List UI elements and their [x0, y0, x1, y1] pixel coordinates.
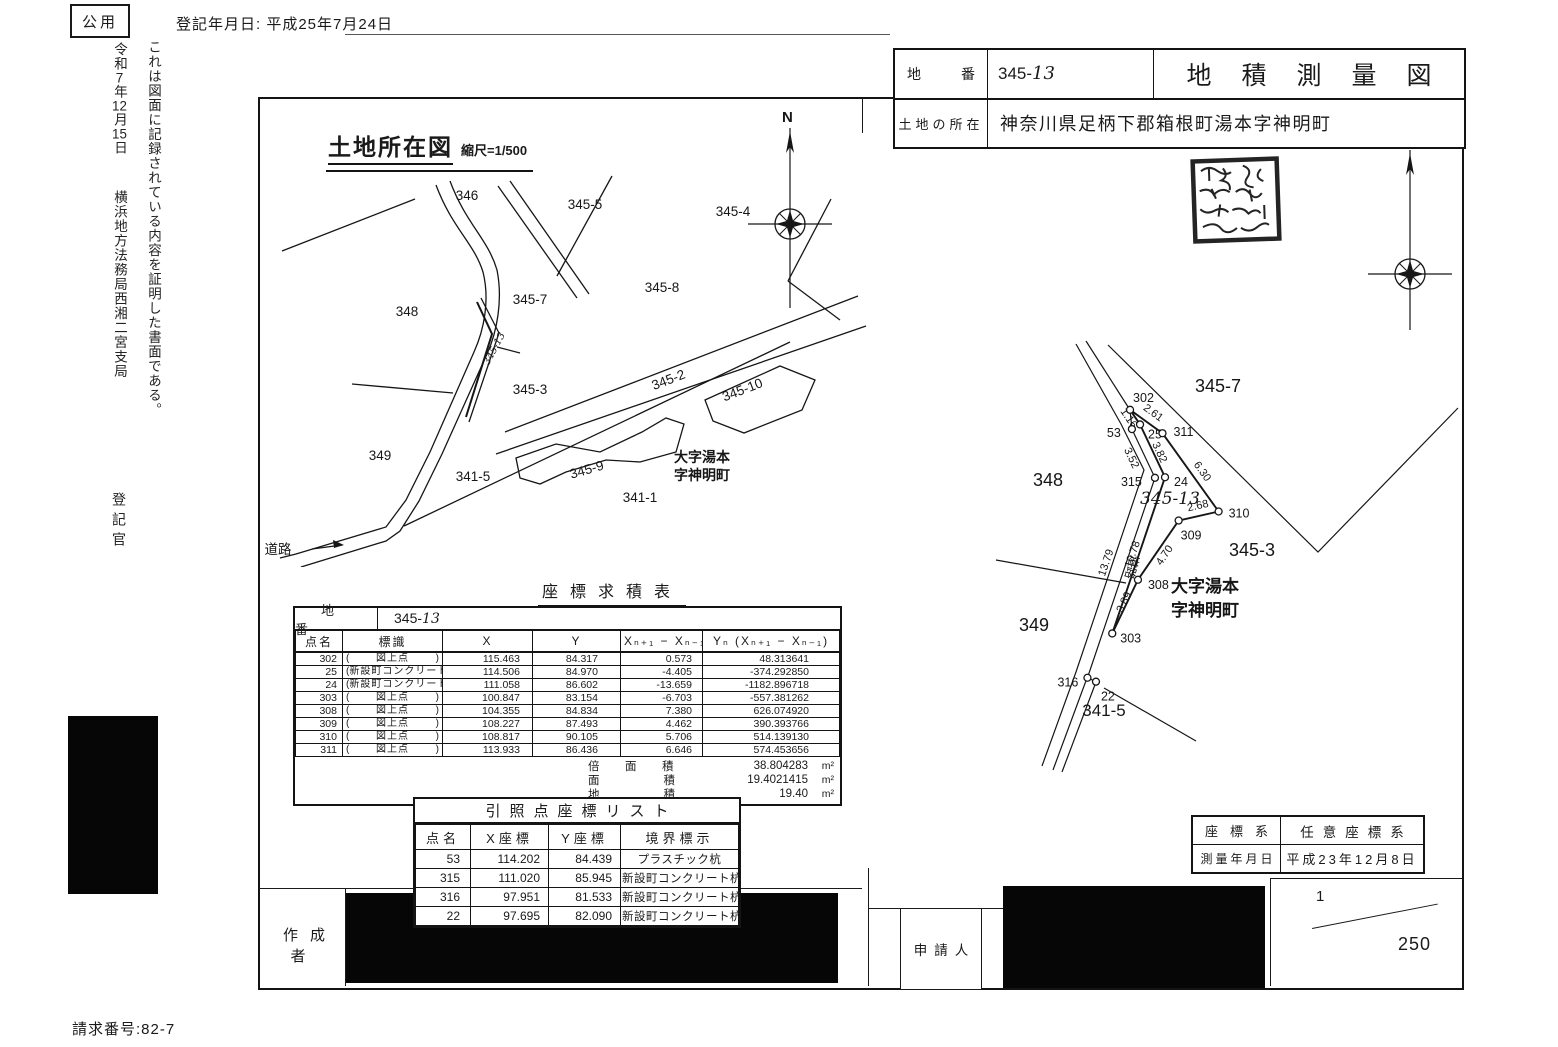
scale-cell-top [1270, 878, 1462, 879]
boundary-line [557, 176, 612, 276]
location-value: 神奈川県足柄下郡箱根町湯本字神明町 [988, 100, 1464, 148]
coord-table-row: 308(図上点)104.35584.8347.380626.074920 [296, 705, 840, 718]
point-mark: (新設町コンクリート杭) [343, 679, 443, 692]
coord-table-row: 24(新設町コンクリート杭)111.05886.602-13.659-1182.… [296, 679, 840, 692]
certificate-date: 令和7年12月15日 [109, 42, 129, 155]
point-mark: (図上点) [343, 705, 443, 718]
coord-x: 113.933 [443, 744, 533, 757]
compass-rose-icon [748, 209, 832, 239]
coord-ydx: 390.393766 [703, 718, 840, 731]
coord-parcel-handwritten: 13 [422, 611, 440, 627]
survey-point-marker [1128, 426, 1135, 433]
reference-table-row: 53114.20284.439プラスチック杭 [416, 850, 739, 869]
coord-y: 86.602 [533, 679, 621, 692]
coord-parcel-number: 345-13 [378, 610, 440, 627]
coord-table-title: 座標求積表 [538, 578, 686, 606]
reference-cell: 315 [416, 869, 471, 888]
coord-ydx: 514.139130 [703, 731, 840, 744]
applicant-label: 申請人 [900, 908, 982, 990]
reference-column-header: 境界標示 [621, 825, 739, 850]
title-block: 地番 345-13 地積測量図 土地の所在 神奈川県足柄下郡箱根町湯本字神明町 [893, 48, 1466, 149]
site-map-title: 土地所在図 縮尺=1/500 [326, 128, 533, 172]
coordinate-table: 地番 345-13 点名 標識 X Y Xₙ₊₁ − Xₙ₋₁ Yₙ (Xₙ₊₁… [293, 606, 842, 806]
site-parcel-label: 345-8 [645, 280, 680, 295]
reference-cell: 85.945 [549, 869, 621, 888]
area-summary-row: 倍面積38.804283m² [295, 759, 834, 773]
survey-region-label: 345-7 [1195, 376, 1241, 396]
survey-meta-table: 座標系 任意座標系 測量年月日 平成23年12月8日 [1191, 815, 1425, 874]
survey-region-label: 大字湯本 [1171, 576, 1239, 596]
site-parcel-label: 345-7 [513, 292, 548, 307]
document-title: 地積測量図 [1154, 50, 1464, 98]
survey-point-label: 315 [1121, 475, 1142, 489]
survey-point-label: 53 [1107, 426, 1121, 440]
reference-cell: プラスチック杭 [621, 850, 739, 869]
scale-cell-divider [1270, 878, 1271, 986]
site-map-title-text: 土地所在図 [328, 128, 453, 165]
edge-distance-label: 3.52 [1121, 446, 1141, 470]
survey-point-label: 302 [1133, 391, 1154, 405]
point-mark: (図上点) [343, 652, 443, 666]
survey-point-marker [1162, 474, 1169, 481]
point-name: 303 [296, 692, 343, 705]
registration-date: 登記年月日: 平成25年7月24日 [176, 13, 393, 34]
point-name: 24 [296, 679, 343, 692]
edge-distance-label: 4.70 [1154, 543, 1176, 567]
north-arrow-right: N [1368, 131, 1452, 330]
survey-static-lines [996, 341, 1458, 772]
reference-cell: 97.951 [471, 888, 549, 907]
coord-dx: -13.659 [621, 679, 703, 692]
reference-cell: 81.533 [549, 888, 621, 907]
coord-y: 90.105 [533, 731, 621, 744]
site-parcel-label: 大字湯本 [674, 449, 731, 465]
coord-dx: 4.462 [621, 718, 703, 731]
coord-parcel-printed: 345- [394, 610, 422, 626]
boundary-line [788, 281, 840, 320]
reference-cell: 111.020 [471, 869, 549, 888]
coord-ydx: 574.453656 [703, 744, 840, 757]
parcel-number-label: 地番 [895, 64, 988, 84]
boundary-line [404, 342, 790, 526]
coord-y: 84.834 [533, 705, 621, 718]
compass-rose-icon [1368, 259, 1452, 289]
reference-column-header: 点名 [416, 825, 471, 850]
col-y: Y [533, 631, 621, 653]
coord-table-row: 302(図上点)115.46384.3170.57348.313641 [296, 652, 840, 666]
location-label: 土地の所在 [895, 100, 988, 148]
reference-table-title: 引照点座標リスト [415, 799, 739, 824]
area-unit: m² [808, 760, 834, 772]
col-ydx: Yₙ (Xₙ₊₁ − Xₙ₋₁) [703, 631, 840, 653]
reference-point-table: 引照点座標リスト 点名X座標Y座標境界標示 53114.20284.439プラス… [413, 797, 741, 928]
survey-edge [1179, 511, 1219, 520]
area-unit: m² [808, 774, 834, 786]
site-parcel-label: 345-9 [568, 458, 605, 482]
reference-column-header: X座標 [471, 825, 549, 850]
survey-traverse: 1.163.8210.783.894.702.686.302.613.5213.… [1019, 376, 1275, 720]
coord-y: 87.493 [533, 718, 621, 731]
survey-point-marker [1137, 421, 1144, 428]
area-value: 38.804283 [678, 760, 808, 772]
site-parcel-label: 道路 [265, 542, 292, 557]
boundary-line [788, 199, 831, 281]
coord-x: 100.847 [443, 692, 533, 705]
reference-column-header: Y座標 [549, 825, 621, 850]
reference-cell: 53 [416, 850, 471, 869]
survey-plot-map: N 1.163.8210.783.894.702.686.302.613.521… [986, 120, 1462, 800]
survey-region-label: 341-5 [1082, 701, 1125, 720]
parcel-number-handwritten: 13 [1032, 63, 1055, 84]
survey-point-marker [1127, 406, 1134, 413]
point-name: 308 [296, 705, 343, 718]
coord-x: 108.817 [443, 731, 533, 744]
reference-cell: 97.695 [471, 907, 549, 926]
survey-date-value: 平成23年12月8日 [1281, 845, 1423, 872]
coord-table-row: 25(新設町コンクリート杭)114.50684.970-4.405-374.29… [296, 666, 840, 679]
coord-y: 83.154 [533, 692, 621, 705]
site-parcel-label: 346 [456, 188, 479, 203]
area-summary-row: 面積19.4021415m² [295, 773, 834, 787]
survey-point-label: 24 [1174, 475, 1188, 489]
coord-dx: -6.703 [621, 692, 703, 705]
reference-table-row: 315111.02085.945新設町コンクリート杭 [416, 869, 739, 888]
reference-table-row: 31697.95181.533新設町コンクリート杭 [416, 888, 739, 907]
coord-y: 84.970 [533, 666, 621, 679]
road-edge-east-bottom [1053, 678, 1087, 770]
survey-point-marker [1175, 517, 1182, 524]
survey-point-label: 309 [1181, 529, 1202, 543]
site-parcel-label: 345-3 [513, 382, 548, 397]
point-name: 302 [296, 652, 343, 666]
reference-cell: 82.090 [549, 907, 621, 926]
coord-ydx: 626.074920 [703, 705, 840, 718]
site-map-scale-note: 縮尺=1/500 [461, 140, 527, 159]
registrar-label: 登記官 [109, 492, 129, 552]
point-name: 309 [296, 718, 343, 731]
survey-point-label: 316 [1057, 676, 1078, 690]
survey-point-marker [1092, 678, 1099, 685]
parcel-number-label-cell: 地番 [895, 50, 988, 98]
site-parcel-label: 341-5 [456, 469, 491, 484]
point-mark: (図上点) [343, 692, 443, 705]
redaction-box-left [68, 716, 158, 894]
site-parcel-label: 349 [369, 448, 392, 463]
point-mark: (図上点) [343, 718, 443, 731]
reference-header-row: 点名X座標Y座標境界標示 [416, 825, 739, 850]
area-value: 19.4021415 [678, 774, 808, 786]
title-row: 地番 345-13 地積測量図 [895, 50, 1464, 100]
site-parcel-label: 341-1 [623, 490, 658, 505]
north-label: N [782, 109, 793, 126]
site-map-labels: 346345-5345-4348345-7345-8345-3345-2345-… [265, 188, 765, 557]
survey-point-label: 311 [1173, 425, 1193, 439]
coord-y: 84.317 [533, 652, 621, 666]
coord-parcel-row: 地番 345-13 [295, 608, 840, 630]
coord-x: 104.355 [443, 705, 533, 718]
site-parcel-label: 345-2 [650, 367, 688, 393]
road-edge-east [301, 181, 499, 567]
survey-point-marker [1109, 630, 1116, 637]
site-map-lines [280, 176, 866, 567]
scale-denominator: 250 [1398, 934, 1431, 955]
author-label: 作成者 [262, 924, 346, 966]
coord-x: 111.058 [443, 679, 533, 692]
coord-x: 115.463 [443, 652, 533, 666]
reference-cell: 316 [416, 888, 471, 907]
coord-table-row: 303(図上点)100.84783.154-6.703-557.381262 [296, 692, 840, 705]
survey-point-marker [1084, 674, 1091, 681]
coord-x: 114.506 [443, 666, 533, 679]
coord-table-row: 310(図上点)108.81790.1055.706514.139130 [296, 731, 840, 744]
parcel-number-cell: 345-13 [988, 50, 1154, 98]
coord-parcel-label: 地番 [295, 608, 378, 629]
coord-dx: 0.573 [621, 652, 703, 666]
survey-point-marker [1159, 430, 1166, 437]
survey-region-label: 349 [1019, 615, 1049, 635]
boundary-line [282, 199, 415, 251]
scale-numerator: 1 [1316, 888, 1324, 905]
area-unit: m² [808, 788, 834, 800]
scanned-cadastral-document: { "page": { "classification": "公用", "reg… [0, 0, 1558, 1047]
parcel-outline-345-9 [516, 418, 684, 484]
point-name: 311 [296, 744, 343, 757]
reference-cell: 114.202 [471, 850, 549, 869]
certificate-text: これは図面に記録されている内容を証明した書面である。 [143, 40, 163, 417]
edge-distance-label: 6.30 [1191, 459, 1213, 483]
coord-ydx: -1182.896718 [703, 679, 840, 692]
coord-table-row: 311(図上点)113.93386.4366.646574.453656 [296, 744, 840, 757]
survey-point-marker [1151, 474, 1158, 481]
survey-date-row: 測量年月日 平成23年12月8日 [1193, 845, 1423, 872]
parcel-number-printed: 345- [998, 64, 1032, 84]
point-mark: (新設町コンクリート杭) [343, 666, 443, 679]
coord-system-value: 任意座標系 [1281, 817, 1423, 844]
point-name: 25 [296, 666, 343, 679]
site-parcel-label: 345-10 [720, 375, 765, 404]
coord-y: 86.436 [533, 744, 621, 757]
edge-distance-label: 3.82 [1149, 440, 1169, 464]
site-parcel-label: 345-4 [716, 204, 751, 219]
registrar-seal-icon [1193, 159, 1280, 242]
reference-cell: 新設町コンクリート杭 [621, 888, 739, 907]
survey-region-label: 345-3 [1229, 540, 1275, 560]
request-number: 請求番号:82-7 [72, 1018, 175, 1039]
reference-table-row: 2297.69582.090新設町コンクリート杭 [416, 907, 739, 926]
survey-region-label: 348 [1033, 470, 1063, 490]
coord-table-row: 309(図上点)108.22787.4934.462390.393766 [296, 718, 840, 731]
reference-cell: 84.439 [549, 850, 621, 869]
redaction-box-applicant [1003, 886, 1265, 988]
coord-ydx: -374.292850 [703, 666, 840, 679]
boundary-line [505, 296, 858, 432]
site-parcel-label: 字神明町 [674, 467, 730, 483]
location-row: 土地の所在 神奈川県足柄下郡箱根町湯本字神明町 [895, 100, 1464, 148]
coord-x: 108.227 [443, 718, 533, 731]
boundary-line [352, 384, 453, 393]
survey-region-label: 字神明町 [1171, 600, 1239, 620]
survey-point-label: 310 [1229, 506, 1250, 520]
site-parcel-label: 348 [396, 304, 419, 319]
coord-dx: 6.646 [621, 744, 703, 757]
point-name: 310 [296, 731, 343, 744]
col-x: X [443, 631, 533, 653]
survey-point-marker [1215, 508, 1222, 515]
coord-system-label: 座標系 [1193, 817, 1281, 844]
coord-dx: 5.706 [621, 731, 703, 744]
point-mark: (図上点) [343, 731, 443, 744]
coord-dx: -4.405 [621, 666, 703, 679]
coord-header-row: 点名 標識 X Y Xₙ₊₁ − Xₙ₋₁ Yₙ (Xₙ₊₁ − Xₙ₋₁) [296, 631, 840, 653]
survey-point-label: 303 [1120, 631, 1141, 645]
rule-line [345, 34, 890, 35]
coord-ydx: 48.313641 [703, 652, 840, 666]
reference-cell: 新設町コンクリート杭 [621, 869, 739, 888]
col-dx: Xₙ₊₁ − Xₙ₋₁ [621, 631, 703, 653]
reference-cell: 新設町コンクリート杭 [621, 907, 739, 926]
coord-ydx: -557.381262 [703, 692, 840, 705]
site-parcel-label: 345-5 [568, 197, 603, 212]
north-arrow-left: N [748, 109, 832, 308]
survey-date-label: 測量年月日 [1193, 845, 1281, 872]
reference-cell: 22 [416, 907, 471, 926]
survey-point-label: 308 [1148, 578, 1169, 592]
legal-affairs-office: 横浜地方法務局西湘二宮支局 [109, 190, 129, 379]
coord-dx: 7.380 [621, 705, 703, 718]
point-mark: (図上点) [343, 744, 443, 757]
edge-distance-label: 13.79 [1096, 548, 1116, 578]
coord-system-row: 座標系 任意座標系 [1193, 817, 1423, 845]
boundary-line [498, 186, 577, 298]
survey-region-label: 345-13 [1140, 489, 1200, 509]
divider-line [868, 868, 869, 986]
public-use-stamp: 公用 [70, 4, 130, 38]
